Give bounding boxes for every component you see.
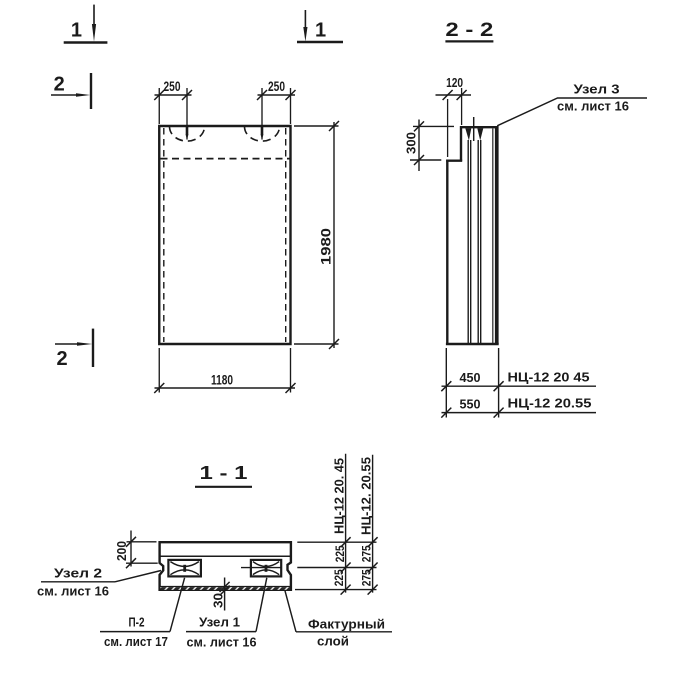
svg-text:см. лист 17: см. лист 17 [104, 635, 168, 649]
svg-text:1180: 1180 [211, 373, 233, 388]
svg-text:275: 275 [359, 545, 373, 562]
svg-text:225: 225 [332, 569, 346, 586]
svg-text:П-2: П-2 [129, 615, 145, 630]
svg-text:250: 250 [268, 79, 285, 94]
svg-text:см. лист 16: см. лист 16 [557, 100, 629, 114]
svg-text:300: 300 [405, 132, 419, 154]
svg-text:550: 550 [460, 397, 481, 412]
svg-text:225: 225 [333, 545, 347, 562]
svg-text:2: 2 [54, 74, 65, 96]
svg-text:200: 200 [115, 541, 129, 561]
svg-text:1: 1 [315, 20, 326, 42]
svg-text:НЦ-12 20. 45: НЦ-12 20. 45 [333, 458, 347, 534]
svg-text:см. лист 16: см. лист 16 [187, 636, 257, 650]
svg-text:30: 30 [212, 593, 226, 608]
svg-text:НЦ-12 20.55: НЦ-12 20.55 [508, 396, 592, 411]
svg-text:Узел 1: Узел 1 [199, 615, 240, 630]
svg-text:450: 450 [460, 370, 481, 385]
svg-text:120: 120 [446, 76, 463, 90]
svg-text:1 - 1: 1 - 1 [200, 462, 248, 483]
svg-text:1980: 1980 [319, 228, 334, 265]
svg-text:2: 2 [56, 348, 67, 370]
svg-text:НЦ-12. 20.55: НЦ-12. 20.55 [360, 457, 374, 535]
svg-text:1: 1 [71, 20, 82, 42]
svg-text:Узел 3: Узел 3 [574, 82, 620, 97]
svg-text:НЦ-12 20 45: НЦ-12 20 45 [508, 370, 590, 385]
svg-text:275: 275 [359, 569, 373, 586]
svg-text:Фактурный: Фактурный [308, 617, 385, 632]
svg-text:250: 250 [164, 79, 181, 94]
svg-text:слой: слой [317, 635, 349, 649]
svg-text:Узел 2: Узел 2 [54, 566, 102, 581]
svg-text:2 - 2: 2 - 2 [445, 20, 493, 41]
svg-text:см. лист 16: см. лист 16 [37, 585, 109, 599]
